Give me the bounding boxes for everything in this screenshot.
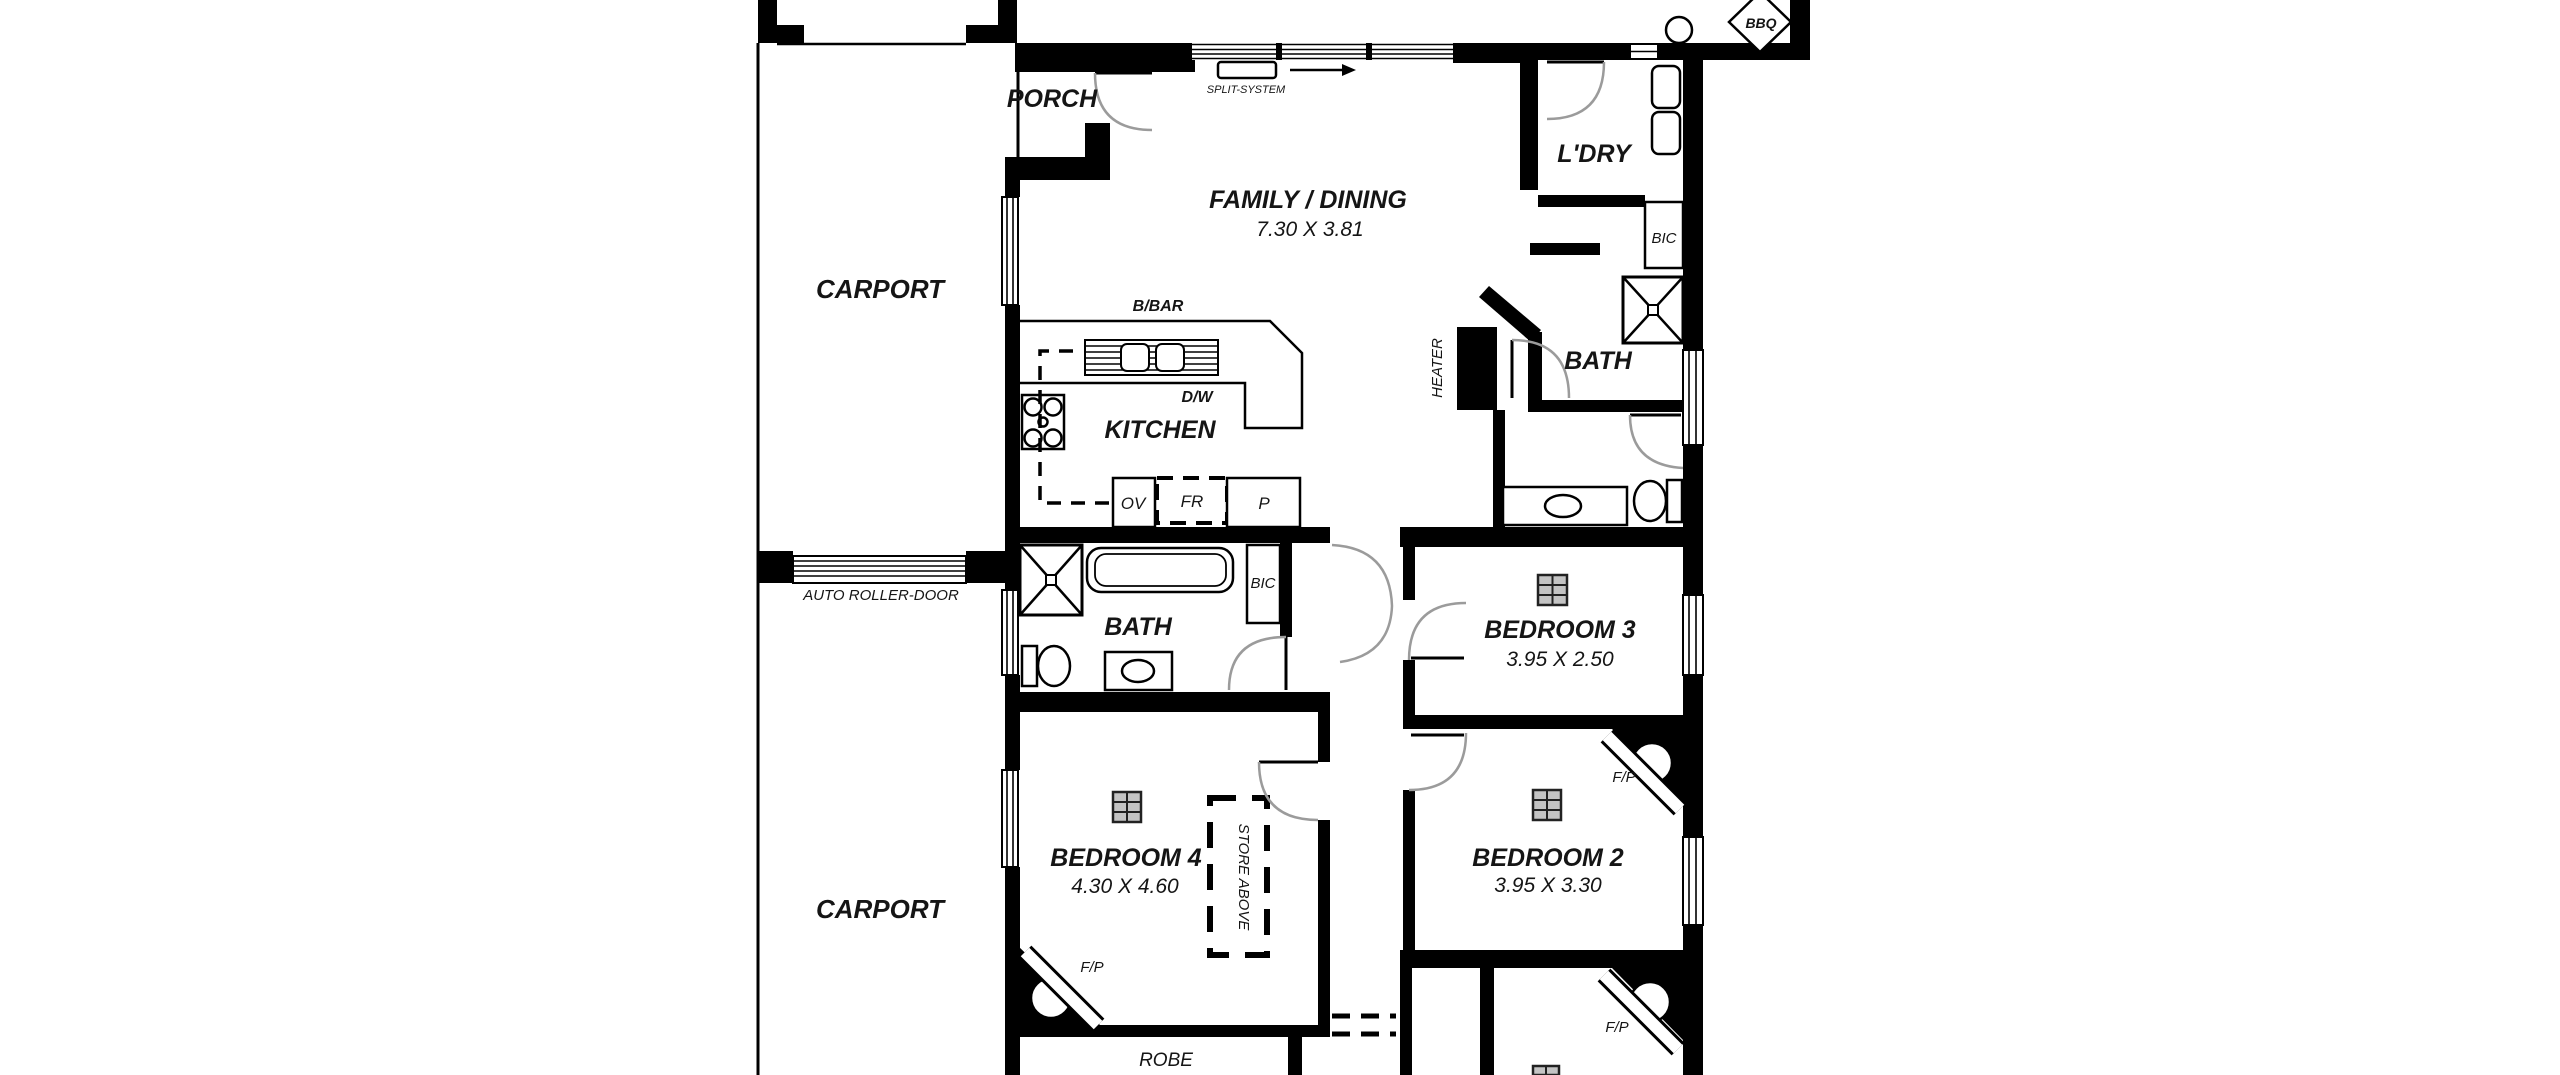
laundry-trough (1652, 112, 1680, 154)
window (1683, 837, 1703, 925)
wall-segment (998, 0, 1017, 43)
oven-label: OV (1121, 494, 1147, 513)
wall-segment (1318, 820, 1330, 1033)
porch-return-wall (1085, 123, 1110, 159)
bedroom4-dims: 4.30 X 4.60 (1071, 875, 1179, 898)
window-mullion (1276, 43, 1282, 60)
bbq-return-wall (1790, 0, 1810, 43)
bedroom4-label: BEDROOM 4 (1050, 844, 1202, 872)
laundry-label: L'DRY (1557, 140, 1633, 168)
porch-label: PORCH (1007, 85, 1098, 113)
wall-segment (1658, 43, 1810, 60)
wall-segment (1533, 43, 1634, 60)
window (1002, 590, 1018, 675)
family-dining-label: FAMILY / DINING (1209, 186, 1407, 214)
wall-segment (1683, 925, 1703, 1075)
fp-bedroom2-label: F/P (1612, 769, 1635, 786)
bic-laundry-label: BIC (1651, 230, 1676, 247)
window (1192, 43, 1453, 60)
wall-segment (1318, 692, 1330, 762)
auto-roller-door (793, 556, 966, 583)
wall-segment (1005, 180, 1020, 197)
kitchen-label: KITCHEN (1104, 416, 1216, 444)
wall-segment (1683, 43, 1703, 350)
wall-segment (1005, 675, 1020, 770)
family-laundry-wall (1520, 60, 1538, 190)
wall-segment (1480, 968, 1494, 1075)
wall-segment (1403, 790, 1415, 950)
wall-segment (757, 551, 793, 583)
fridge-label: FR (1181, 492, 1204, 511)
bed2-bottom-wall (1410, 950, 1683, 968)
carport-rear-label: CARPORT (816, 894, 946, 924)
bbar-label: B/BAR (1133, 298, 1184, 315)
floor-plan: CARPORT CARPORT PORCH FAMILY / DINING 7.… (0, 0, 2560, 1075)
wall-segment (758, 25, 804, 43)
toilet-icon (1022, 646, 1070, 686)
bedroom2-dims: 3.95 X 3.30 (1494, 874, 1602, 897)
bic-hall-label: BIC (1250, 575, 1275, 592)
kitchen-bottom-wall (1005, 527, 1330, 543)
wall-segment (1400, 950, 1412, 1075)
heater-label: HEATER (1429, 338, 1446, 398)
bbq-label: BBQ (1745, 15, 1776, 31)
wall-segment (1403, 547, 1415, 600)
window (1002, 770, 1018, 867)
pantry-label: P (1258, 494, 1270, 513)
bath-two-label: BATH (1104, 613, 1173, 641)
window (1683, 350, 1703, 445)
wall-segment (966, 25, 998, 43)
toilet-icon (1634, 480, 1682, 522)
ceiling-grid-icon (1533, 790, 1561, 820)
shower-icon (1623, 277, 1683, 343)
robe-wall (1288, 1037, 1302, 1075)
wall-segment (1400, 527, 1683, 547)
laundry-bottom-wall (1538, 195, 1645, 207)
ceiling-grid-icon (1538, 575, 1567, 605)
store-above-label: STORE ABOVE (1235, 824, 1252, 932)
porch-top-wall (1015, 43, 1195, 72)
fp-bedroom1-label: F/P (1605, 1019, 1628, 1036)
kitchen-sink (1085, 340, 1218, 375)
porch-step-wall (1005, 157, 1110, 180)
cooktop-icon (1022, 395, 1064, 449)
bath2-bottom-wall (1005, 692, 1330, 712)
family-dining-dims: 7.30 X 3.81 (1256, 218, 1363, 241)
wall-segment (1005, 305, 1020, 590)
bath-top-wall (1530, 243, 1600, 255)
window-mullion (1366, 43, 1372, 60)
bed4-bottom-wall (1005, 1025, 1330, 1037)
ceiling-grid-icon (1113, 792, 1141, 822)
wall-segment (966, 551, 1018, 583)
laundry-trough (1652, 66, 1680, 108)
wall-segment (1683, 445, 1703, 595)
window (1683, 595, 1703, 675)
bath-bottom-wall (1540, 400, 1683, 412)
vanity-icon (1105, 652, 1172, 690)
shower-icon (1020, 545, 1082, 615)
wall-segment (1683, 675, 1703, 837)
bedroom2-label: BEDROOM 2 (1472, 844, 1624, 872)
split-system-label: SPLIT-SYSTEM (1207, 84, 1286, 96)
wall-segment (1280, 543, 1292, 637)
vanity-icon (1503, 487, 1627, 525)
bedroom3-label: BEDROOM 3 (1484, 616, 1636, 644)
robe-label: ROBE (1139, 1050, 1193, 1071)
dw-label: D/W (1181, 389, 1214, 406)
bed3-bottom-wall (1403, 715, 1683, 729)
fp-bedroom4-label: F/P (1080, 959, 1103, 976)
auto-roller-door-label: AUTO ROLLER-DOOR (802, 587, 959, 604)
outdoor-sink-icon (1666, 17, 1692, 43)
bedroom3-dims: 3.95 X 2.50 (1506, 648, 1614, 671)
wall-segment (1403, 660, 1415, 715)
heater-unit (1457, 327, 1497, 410)
ceiling-grid-icon (1533, 1066, 1559, 1075)
carport-front-label: CARPORT (816, 274, 946, 304)
bathtub-icon (1087, 548, 1233, 592)
bath-main-label: BATH (1564, 347, 1633, 375)
window (1002, 197, 1018, 305)
